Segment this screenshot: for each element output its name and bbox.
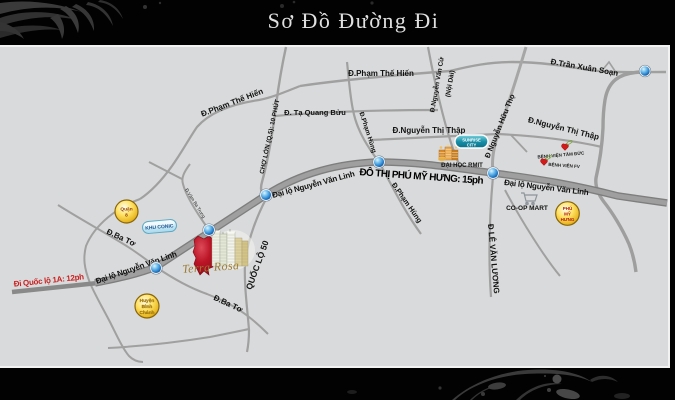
svg-text:Bình: Bình <box>142 304 153 310</box>
svg-text:Quận: Quận <box>120 207 132 213</box>
svg-text:Đ.Nguyễn Thị Thập: Đ.Nguyễn Thị Thập <box>393 126 466 135</box>
svg-text:8: 8 <box>125 213 128 219</box>
svg-text:PHÚ: PHÚ <box>563 205 573 211</box>
svg-text:(Nội Dài): (Nội Dài) <box>445 70 457 98</box>
svg-text:Đại lộ Nguyễn Văn Linh: Đại lộ Nguyễn Văn Linh <box>95 249 179 285</box>
svg-text:BỆNH VIỆN TÂM ĐỨC: BỆNH VIỆN TÂM ĐỨC <box>537 148 585 159</box>
svg-text:Đ. Tạ Quang Bửu: Đ. Tạ Quang Bửu <box>284 108 346 117</box>
svg-text:Đ LÊ VĂN LƯƠNG: Đ LÊ VĂN LƯƠNG <box>486 224 501 294</box>
svg-text:Đ Nguyễn Hữu Thọ: Đ Nguyễn Hữu Thọ <box>483 92 517 159</box>
svg-text:Đ.Phạm Hùng: Đ.Phạm Hùng <box>390 181 424 225</box>
svg-text:Đ.Ba Tơ: Đ.Ba Tơ <box>105 227 137 248</box>
svg-text:Đ.Nguyễn Văn Cử: Đ.Nguyễn Văn Cử <box>427 56 446 113</box>
svg-text:Terra Rosa: Terra Rosa <box>182 258 240 276</box>
svg-text:CHỢ LỚN (Q.5): 10 PHÚT: CHỢ LỚN (Q.5): 10 PHÚT <box>257 98 282 174</box>
svg-text:HƯNG: HƯNG <box>561 217 575 222</box>
svg-text:CITY: CITY <box>467 143 477 148</box>
svg-text:Đ.Phạm Thế Hiến: Đ.Phạm Thế Hiến <box>348 69 414 78</box>
svg-text:Chánh: Chánh <box>140 310 155 316</box>
svg-text:Đ.Vàm Ba Trung: Đ.Vàm Ba Trung <box>184 187 206 219</box>
svg-text:Đ.Phạm Thế Hiến: Đ.Phạm Thế Hiến <box>200 87 265 119</box>
svg-text:BỆNH VIỆN FV: BỆNH VIỆN FV <box>548 160 580 169</box>
svg-text:Đ.Ba Tơ: Đ.Ba Tơ <box>212 293 244 314</box>
svg-text:Huyện: Huyện <box>140 298 155 304</box>
svg-text:Đ.Trần Xuân Soạn: Đ.Trần Xuân Soạn <box>550 57 619 78</box>
svg-text:MỸ: MỸ <box>564 211 571 217</box>
svg-text:CO-OP MART: CO-OP MART <box>506 205 548 212</box>
svg-text:ĐẠI HỌC RMIT: ĐẠI HỌC RMIT <box>441 163 483 169</box>
